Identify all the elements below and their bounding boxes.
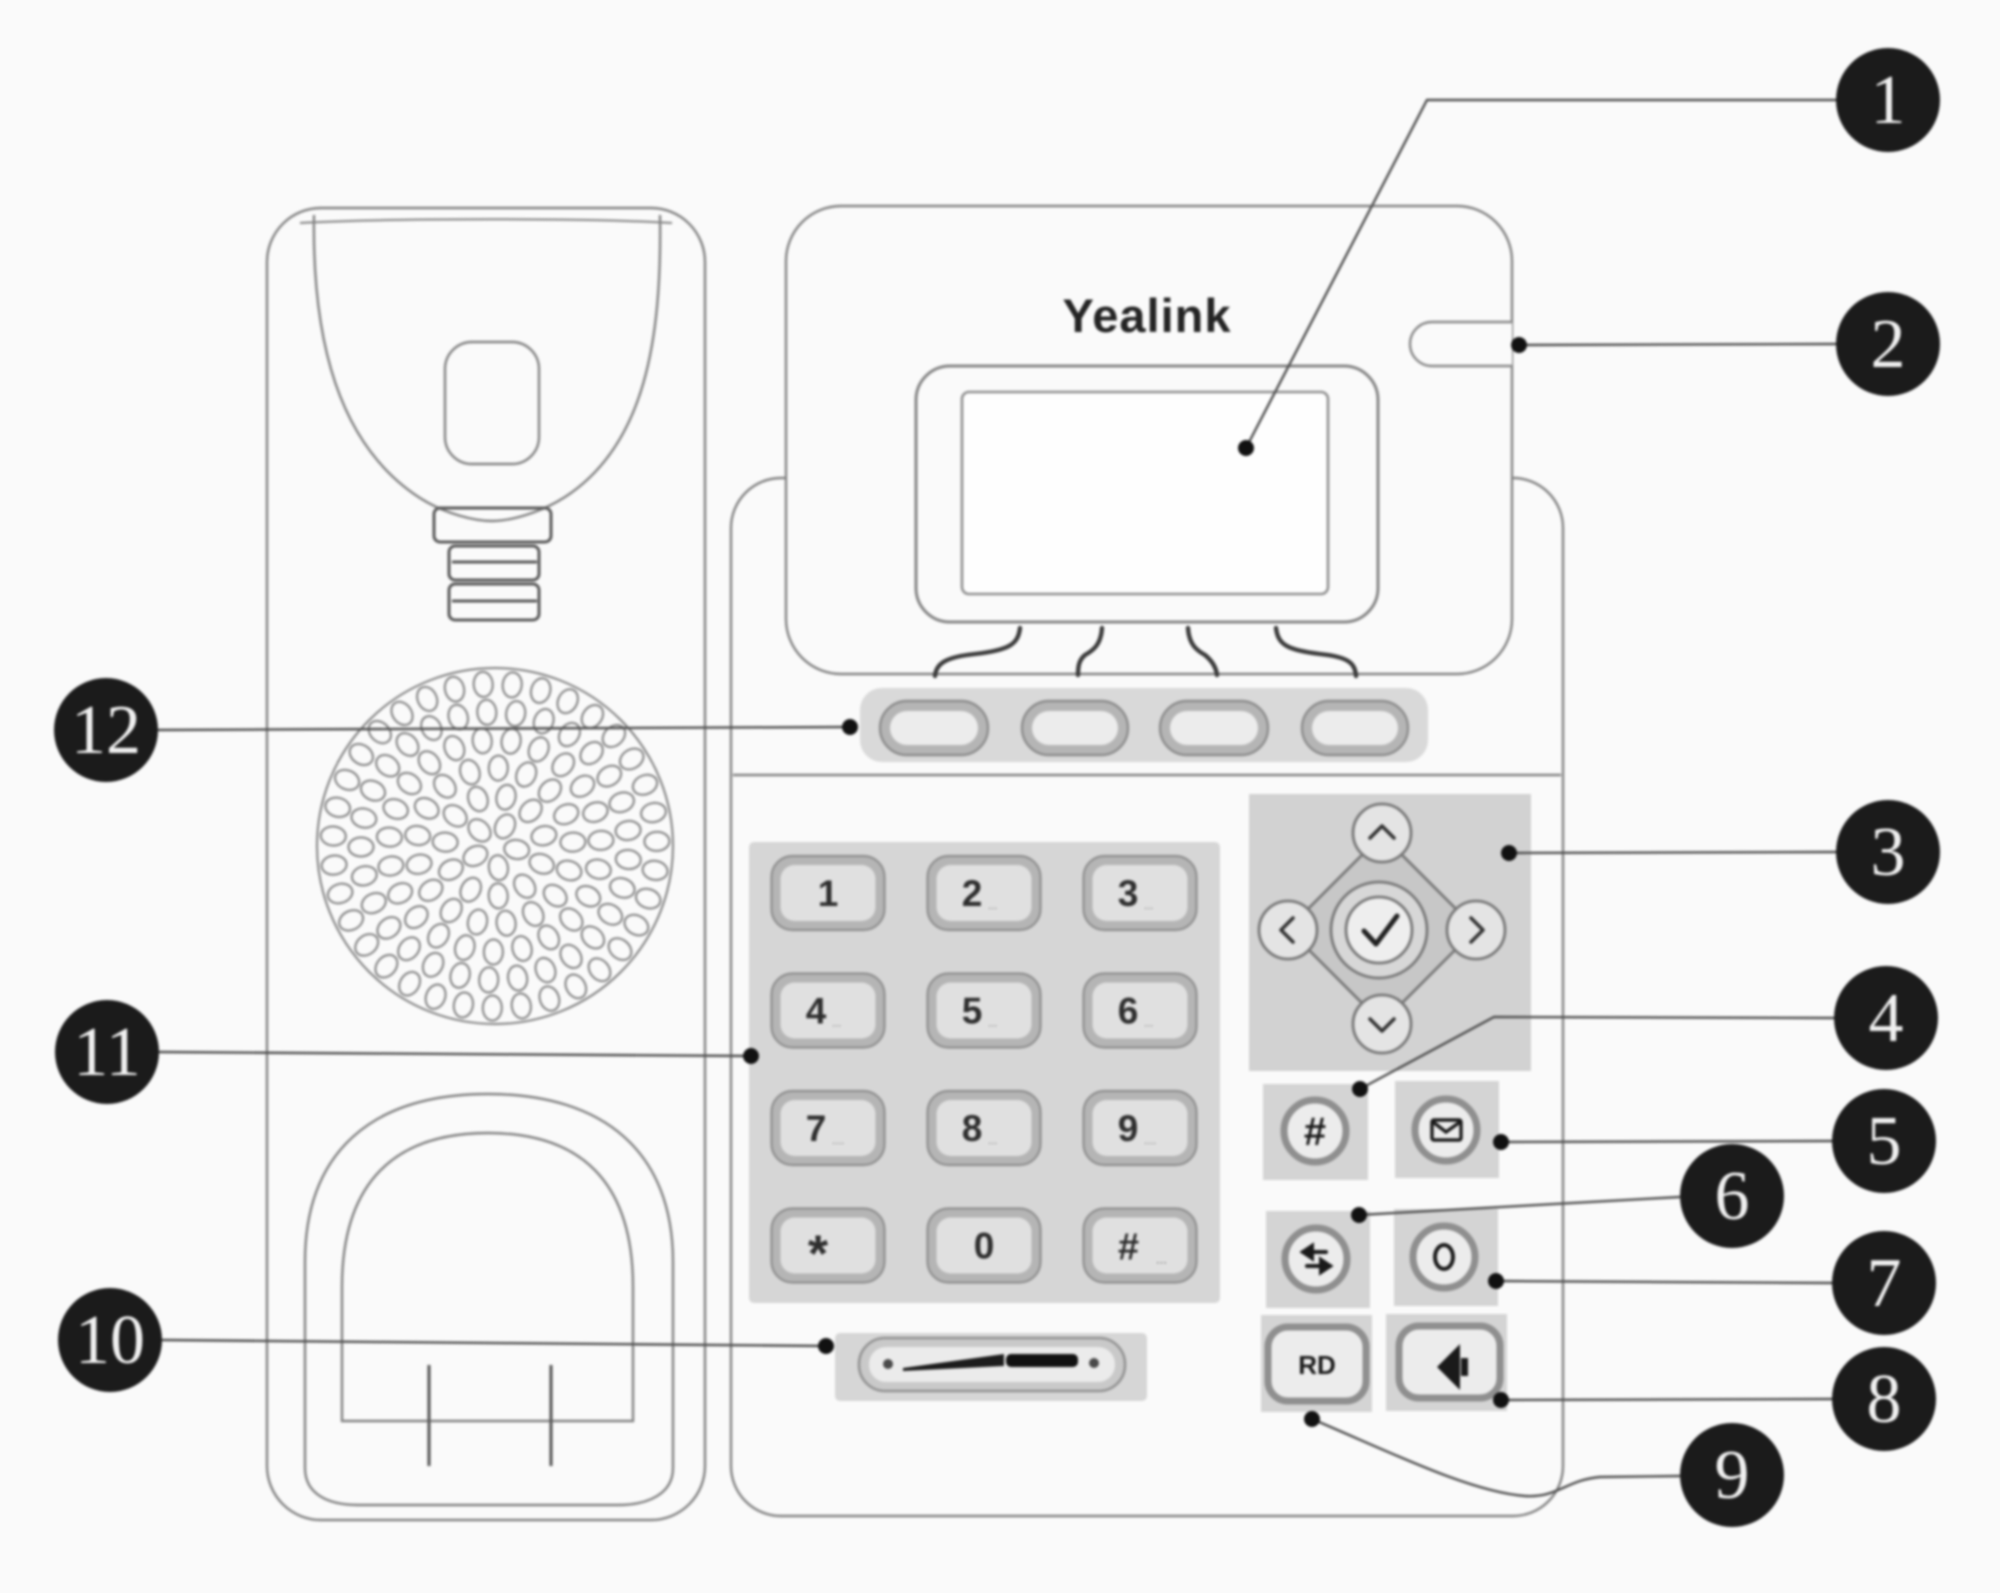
svg-text:4: 4	[806, 991, 827, 1032]
svg-text:...: ...	[832, 1018, 841, 1030]
svg-text:3: 3	[1118, 873, 1139, 914]
svg-text:9: 9	[1715, 1437, 1750, 1514]
svg-text:3: 3	[1871, 814, 1906, 891]
svg-text:5: 5	[1867, 1103, 1902, 1180]
svg-text:...: ...	[1144, 1018, 1153, 1030]
svg-text:....: ....	[1144, 1135, 1156, 1147]
svg-text:*: *	[808, 1226, 829, 1284]
svg-text:10: 10	[75, 1302, 145, 1379]
svg-text:7: 7	[806, 1108, 827, 1149]
svg-text:2: 2	[1871, 306, 1906, 383]
svg-text:...: ...	[988, 1135, 997, 1147]
svg-text:...: ...	[1144, 900, 1153, 912]
svg-text:6: 6	[1715, 1158, 1750, 1235]
svg-text:1: 1	[818, 873, 839, 914]
svg-text:8: 8	[1867, 1361, 1902, 1438]
svg-text:4: 4	[1869, 980, 1904, 1057]
svg-text:8: 8	[962, 1108, 983, 1149]
svg-text:RD: RD	[1298, 1350, 1336, 1380]
svg-text:#: #	[1117, 1227, 1139, 1269]
svg-text:0: 0	[974, 1226, 995, 1267]
svg-text:11: 11	[73, 1014, 140, 1091]
svg-text:2: 2	[962, 873, 983, 914]
svg-text:....: ....	[832, 1135, 844, 1147]
svg-text:...: ...	[988, 1018, 997, 1030]
svg-text:...: ...	[988, 900, 997, 912]
svg-text:#: #	[1304, 1110, 1326, 1154]
svg-text:Yealink: Yealink	[1063, 289, 1232, 342]
svg-text:12: 12	[71, 692, 141, 769]
svg-text:1: 1	[1871, 62, 1906, 139]
svg-text:9: 9	[1118, 1108, 1139, 1149]
svg-text:6: 6	[1118, 991, 1139, 1032]
svg-text:5: 5	[962, 991, 983, 1032]
svg-text:...: ...	[1156, 1252, 1167, 1267]
svg-text:7: 7	[1867, 1245, 1902, 1322]
